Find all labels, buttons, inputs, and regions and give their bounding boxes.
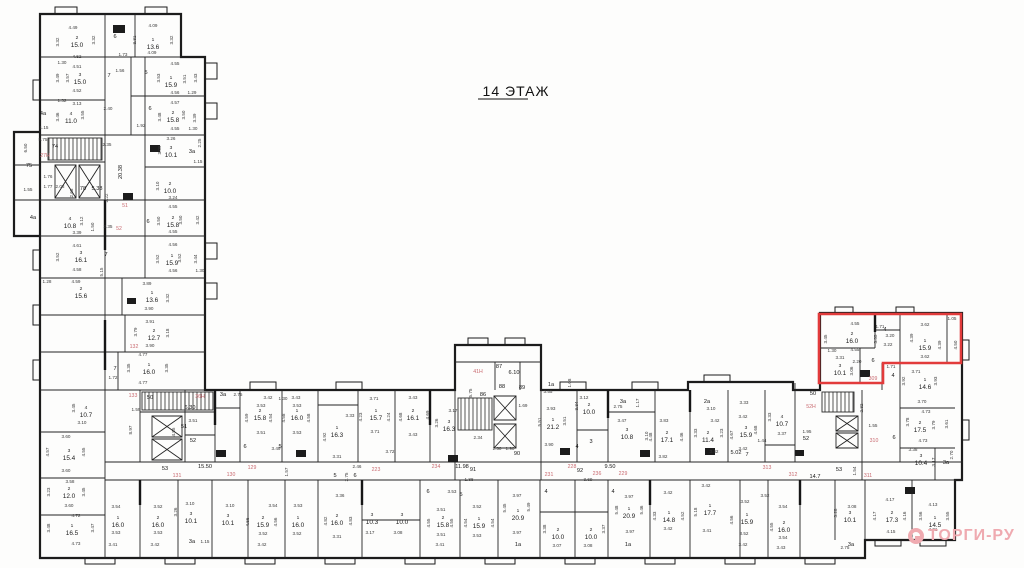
dimension-label: 3.34 [574, 401, 579, 410]
room-number-label: 2 [666, 430, 669, 436]
dimension-label: 4.49 [69, 25, 78, 30]
plan-annotation: 4 [575, 444, 578, 450]
dimension-label: 4.17 [886, 497, 895, 502]
dimension-label: 4.68 [398, 412, 403, 421]
dimension-label: 4.54 [490, 518, 495, 527]
thick-wall-accents [105, 200, 875, 505]
room-number-label: 1 [517, 508, 520, 514]
plan-annotation: 3 [589, 439, 592, 445]
room-area-label: 10.7 [80, 412, 93, 419]
dimension-label: 3.32 [55, 37, 60, 46]
dimension-label: 1.28 [43, 279, 52, 284]
dimension-label: 3.08 [848, 504, 857, 509]
dimension-label: 5.15 [99, 267, 104, 276]
dimension-label: 3.52 [155, 254, 160, 263]
room-number-label: 2 [783, 520, 786, 526]
apartment-number-label: 129 [248, 465, 257, 471]
dimension-label: 3.17 [449, 408, 458, 413]
dimension-label: 1.29 [188, 90, 197, 95]
dimension-label: 3.51 [189, 418, 198, 423]
dimension-label: 1.88 [465, 477, 474, 482]
dimension-label: 3.06 [849, 366, 854, 375]
plan-annotation: 15.50 [198, 464, 212, 470]
room-area-label: 15.9 [473, 523, 486, 530]
dimension-label: 3.10 [78, 420, 87, 425]
plan-annotation: 6 [426, 489, 429, 495]
dimension-label: 3.31 [333, 534, 342, 539]
room-area-label: 15.8 [167, 117, 180, 124]
dimension-label: 4.56 [273, 517, 278, 526]
room-area-label: 17.1 [661, 437, 674, 444]
dimension-label: 3.07 [553, 543, 562, 548]
room-number-label: 1 [148, 362, 151, 368]
dimension-label: 3.42 [151, 542, 160, 547]
room-number-label: 4 [69, 216, 72, 222]
page-title: 14 ЭТАЖ [483, 83, 550, 99]
dimension-label: 1.32 [58, 98, 67, 103]
dimension-label: 4.58 [281, 413, 286, 422]
apartment-number-label: 132 [130, 344, 139, 350]
room-area-label: 20.9 [512, 515, 525, 522]
dimension-label: 4.15 [887, 529, 896, 534]
dimension-label: 3.51 [437, 507, 446, 512]
dimension-label: 3.43 [409, 395, 418, 400]
dimension-label: 3.53 [156, 73, 161, 82]
room-number-label: 2 [153, 328, 156, 334]
dimension-label: 3.97 [626, 529, 635, 534]
dimension-label: 3.22 [884, 342, 893, 347]
plan-annotation: 52 [803, 436, 809, 442]
plan-annotation: 5.02 [731, 450, 742, 456]
dimension-label: 4.39 [909, 333, 914, 342]
dimension-label: 4.52 [73, 54, 82, 59]
dimension-label: 3.97 [513, 530, 522, 535]
dimension-label: 1.76 [44, 174, 53, 179]
plan-annotation: 6 [871, 358, 874, 364]
dimension-label: 2.08 [56, 184, 65, 189]
dimension-label: 3.91 [146, 319, 155, 324]
room-area-label: 10.1 [222, 520, 235, 527]
room-area-label: 10.3 [366, 519, 379, 526]
dimension-label: 4.56 [169, 268, 178, 273]
dimension-label: 1.55 [24, 187, 33, 192]
dimension-label: 3.48 [46, 523, 51, 532]
dimension-label: 4.58 [306, 413, 311, 422]
dimension-label: 3.50 [181, 110, 186, 119]
dimension-label: 3.54 [779, 504, 788, 509]
dimension-label: 3.32 [165, 293, 170, 302]
dimension-label: 3.61 [944, 419, 949, 428]
apartment-number-label: 312 [789, 472, 798, 478]
dimension-label: 3.33 [693, 428, 698, 437]
plan-annotation: 1а [625, 542, 632, 548]
room-number-label: 2 [412, 408, 415, 414]
apartment-number-label: 27Н [40, 153, 50, 159]
dimension-label: 3.93 [933, 376, 938, 385]
dimension-label: 4.51 [73, 64, 82, 69]
dimension-label: 4.55 [851, 321, 860, 326]
dimension-label: 3.08 [584, 543, 593, 548]
room-number-label: 2 [169, 181, 172, 187]
dimension-label: 4.59 [72, 279, 81, 284]
room-number-label: 4 [781, 414, 784, 420]
dimension-label: 4.92 [322, 432, 327, 441]
dimension-label: 4.55 [171, 427, 176, 436]
dimension-label: 3.10 [155, 181, 160, 190]
dimension-label: 3.92 [901, 376, 906, 385]
room-number-label: 1 [478, 516, 481, 522]
dimension-label: 3.69 [584, 477, 593, 482]
dimension-label: 4.39 [937, 340, 942, 349]
dimension-label: 3.51 [562, 416, 567, 425]
room-number-label: 1 [746, 512, 749, 518]
dimension-label: 3.39 [73, 230, 82, 235]
apartment-number-label: 36Н [195, 394, 205, 400]
dimension-label: 3.24 [169, 195, 178, 200]
plan-labels: 215.0113.6315.0115.9411.0215.8310.1210.0… [23, 23, 958, 550]
dimension-label: 3.18 [165, 328, 170, 337]
plan-annotation: 4 [544, 489, 547, 495]
plan-annotation: 75 [26, 163, 32, 169]
dimension-label: 1.56 [116, 68, 125, 73]
room-area-label: 10.8 [621, 434, 634, 441]
room-number-label: 1 [668, 510, 671, 516]
room-number-label: 3 [80, 250, 83, 256]
dimension-label: 2.70 [949, 450, 954, 459]
apartment-number-label: 131 [173, 473, 182, 479]
apartment-number-label: 313 [763, 465, 772, 471]
dimension-label: 3.97 [625, 494, 634, 499]
dimension-label: 4.55 [769, 522, 774, 531]
dimension-label: 5.46 [639, 505, 644, 514]
room-area-label: 10.0 [552, 534, 565, 541]
dimension-label: 2.68 [69, 188, 74, 197]
room-number-label: 3 [227, 513, 230, 519]
dimension-label: 3.79 [931, 420, 936, 429]
room-number-label: 2 [259, 408, 262, 414]
plan-annotation: 89 [519, 385, 525, 391]
room-area-label: 16.0 [152, 522, 165, 529]
dimension-label: 4.54 [463, 518, 468, 527]
dimension-label: 3.13 [73, 101, 82, 106]
room-area-label: 15.6 [75, 293, 88, 300]
plan-annotation: 7 [107, 73, 110, 79]
room-number-label: 1 [628, 506, 631, 512]
room-number-label: 1 [552, 417, 555, 423]
dimension-label: 3.58 [66, 479, 75, 484]
plan-annotation: 20.38 [118, 165, 124, 179]
room-number-label: 3 [745, 425, 748, 431]
dimension-label: 4.13 [929, 502, 938, 507]
plan-annotation: 6 [146, 219, 149, 225]
dimension-label: 3.62 [921, 354, 930, 359]
room-number-label: 2 [172, 215, 175, 221]
plan-annotation: 53 [162, 466, 168, 472]
dimension-label: 4.55 [81, 447, 86, 456]
dimension-label: 4.72 [72, 513, 81, 518]
plan-annotation: 6 [243, 444, 246, 450]
dimension-label: 3.44 [193, 254, 198, 263]
dimension-label: 3.60 [62, 434, 71, 439]
plan-annotation: 5.38 [92, 186, 103, 192]
plan-annotation: 2а [704, 399, 711, 405]
dimension-label: 3.43 [777, 545, 786, 550]
dimension-label: 4.09 [149, 23, 158, 28]
plan-annotation: 50 [147, 395, 153, 401]
dimension-label: 3.90 [545, 442, 554, 447]
room-number-label: 1 [117, 515, 120, 521]
dimension-label: 2.34 [474, 435, 483, 440]
dimension-label: 4.52 [73, 88, 82, 93]
plan-annotation: 3а [189, 149, 196, 155]
dimension-label: 3.38 [909, 447, 918, 452]
dimension-label: 3.45 [81, 487, 86, 496]
dimension-label: 3.42 [664, 490, 673, 495]
dimension-label: 3.54 [269, 503, 278, 508]
dimension-label: 1.50 [493, 446, 502, 451]
room-area-label: 14.6 [919, 384, 932, 391]
dimension-label: 4.69 [425, 410, 430, 419]
dimension-label: 3.71 [370, 396, 379, 401]
dimension-label: 3.78 [905, 417, 910, 426]
dimension-label: 3.90 [146, 343, 155, 348]
dimension-label: 4.61 [73, 243, 82, 248]
dimension-label: 4.09 [148, 50, 157, 55]
dimension-label: 3.42 [664, 526, 673, 531]
dimension-label: 4.55 [171, 61, 180, 66]
room-area-label: 15.8 [254, 415, 267, 422]
dimension-label: 4.68 [753, 425, 758, 434]
dimension-label: 1.59 [132, 407, 141, 412]
dimension-label: 3.35 [126, 363, 131, 372]
dimension-label: 4.50 [953, 340, 958, 349]
dimension-label: 3.32 [91, 35, 96, 44]
dimension-label: 3.43 [292, 395, 301, 400]
plan-annotation: 6 [892, 435, 895, 441]
plan-annotation: 11.98 [455, 464, 469, 470]
room-number-label: 2 [76, 35, 79, 41]
dimension-label: 4.55 [169, 229, 178, 234]
room-number-label: 1 [709, 503, 712, 509]
dimension-label: 3.09 [157, 145, 162, 154]
room-area-label: 16.0 [331, 520, 344, 527]
dimension-label: 3.53 [294, 503, 303, 508]
dimension-label: 1.73 [119, 52, 128, 57]
dimension-label: 1.30 [189, 126, 198, 131]
dimension-label: 4.48 [648, 432, 653, 441]
dimension-label: 3.51 [257, 430, 266, 435]
room-area-label: 10.1 [185, 518, 198, 525]
dimension-label: 3.26 [167, 136, 176, 141]
room-number-label: 3 [170, 145, 173, 151]
dimension-label: 3.55 [80, 110, 85, 119]
dimension-label: 5.51 [537, 417, 542, 426]
dimension-label: 3.12 [580, 395, 589, 400]
dimension-label: 5.45 [502, 503, 507, 512]
dimension-label: 3.28 [833, 508, 838, 517]
dimension-label: 3.37 [778, 431, 787, 436]
dimension-label: 4.54 [268, 413, 273, 422]
dimension-label: 3.50 [156, 216, 161, 225]
apartment-number-label: 51 [122, 203, 128, 209]
dimension-label: 3.70 [918, 399, 927, 404]
dimension-label: 3.52 [473, 504, 482, 509]
room-number-label: 3 [190, 511, 193, 517]
plan-annotation: 6 [353, 473, 356, 479]
dimension-label: 3.10 [186, 501, 195, 506]
dimension-label: 3.50 [178, 215, 183, 224]
plan-annotation: 50 [810, 391, 816, 397]
dimension-label: 3.26 [434, 418, 439, 427]
room-number-label: 2 [336, 513, 339, 519]
dimension-label: 4.77 [139, 380, 148, 385]
dimension-label: 2.20 [853, 359, 862, 364]
dimension-label: 3.52 [177, 253, 182, 262]
plan-annotation: 4 [883, 327, 886, 333]
apartment-number-label: 223 [372, 467, 381, 473]
dimension-label: 3.55 [873, 334, 878, 343]
room-area-label: 16.3 [443, 426, 456, 433]
dimension-label: 3.10 [707, 406, 716, 411]
room-area-label: 15.9 [165, 82, 178, 89]
dimension-label: 3.52 [154, 504, 163, 509]
dimension-label: 4.55 [449, 518, 454, 527]
room-area-label: 16.0 [778, 527, 791, 534]
dimension-label: 2.25 [197, 138, 202, 147]
room-area-label: 11.0 [65, 118, 77, 125]
plan-annotation: 6.30 [185, 405, 196, 411]
dimension-label: 3.93 [547, 406, 556, 411]
dimension-label: 2.75 [344, 472, 349, 481]
dimension-label: 3.12 [79, 216, 84, 225]
room-number-label: 2 [919, 420, 922, 426]
room-number-label: 3 [401, 512, 404, 518]
room-area-label: 16.5 [66, 530, 79, 537]
watermark-text: ТОРГИ-РУ [928, 527, 1015, 545]
dimension-label: 3.53 [154, 530, 163, 535]
dimension-label: 3.79 [133, 327, 138, 336]
room-area-label: 20.9 [623, 513, 636, 520]
dimension-label: 4.55 [426, 518, 431, 527]
plan-annotation: 86 [480, 392, 486, 398]
room-area-label: 16.3 [331, 432, 344, 439]
room-number-label: 1 [171, 253, 174, 259]
plan-annotation: 3а [620, 399, 627, 405]
room-number-label: 3 [849, 510, 852, 516]
room-area-label: 11.4 [702, 437, 714, 444]
room-number-label: 3 [371, 512, 374, 518]
dimension-label: 3.55 [945, 511, 950, 520]
room-number-label: 3 [448, 419, 451, 425]
apartment-number-label: 234 [432, 464, 441, 470]
dimension-label: 3.33 [767, 412, 772, 421]
room-number-label: 2 [172, 110, 175, 116]
dimension-label: 3.62 [921, 322, 930, 327]
room-area-label: 16.0 [112, 522, 125, 529]
plan-annotation: 4 [891, 373, 894, 379]
plan-annotation: 4а [40, 111, 47, 117]
room-number-label: 4 [70, 111, 73, 117]
room-area-label: 16.0 [143, 369, 156, 376]
dimension-label: 1.05 [948, 316, 957, 321]
plan-annotation: 90 [514, 451, 520, 457]
apartment-number-label: 229 [619, 471, 628, 477]
plan-annotation: 1а [548, 382, 555, 388]
dimension-label: 1.08 [567, 378, 572, 387]
dimension-label: 3.20 [886, 333, 895, 338]
dimension-label: 2.75 [234, 392, 243, 397]
plan-annotation: 74 [52, 144, 58, 150]
dimension-label: 3.53 [257, 403, 266, 408]
dimension-label: 1.55 [869, 423, 878, 428]
dimension-label: 8.97 [128, 425, 133, 434]
room-area-label: 17.7 [704, 510, 717, 517]
dimension-label: 1.30 [196, 268, 205, 273]
dimension-label: 1.57 [284, 467, 289, 476]
dimension-label: 3.52 [293, 531, 302, 536]
watermark: ТОРГИ-РУ [908, 527, 1015, 545]
room-area-label: 10.7 [776, 421, 789, 428]
dimension-label: 4.56 [245, 517, 250, 526]
room-area-label: 17.5 [914, 427, 927, 434]
room-area-label: 15.9 [919, 345, 932, 352]
dimension-label: 3.49 [55, 73, 60, 82]
plan-annotation: 9.50 [605, 464, 616, 470]
room-area-label: 15.9 [741, 519, 754, 526]
dimension-label: 3.43 [409, 432, 418, 437]
dimension-label: 3.10 [226, 503, 235, 508]
dimension-label: 4.83 [348, 516, 353, 525]
dimension-label: 3.42 [258, 542, 267, 547]
room-area-label: 10.8 [64, 223, 77, 230]
dimension-label: 3.42 [739, 542, 748, 547]
room-area-label: 10.0 [583, 409, 596, 416]
dimension-label: 3.53 [112, 530, 121, 535]
dimension-label: 3.53 [293, 430, 302, 435]
dimension-label: 3.31 [132, 35, 137, 44]
room-number-label: 1 [924, 377, 927, 383]
room-area-label: 10.1 [844, 517, 857, 524]
plan-annotation: 5 [278, 444, 281, 450]
dimension-label: 4.55 [169, 204, 178, 209]
plan-annotation: 3а [848, 542, 855, 548]
dimension-label: 3.89 [143, 281, 152, 286]
dimension-label: 3.52 [741, 499, 750, 504]
room-area-label: 10.0 [396, 519, 409, 526]
room-area-label: 14.8 [663, 517, 676, 524]
dimension-label: 1.54 [852, 466, 857, 475]
plan-annotation: 5 [144, 70, 147, 76]
room-number-label: 2 [851, 331, 854, 337]
dimension-label: 3.52 [740, 531, 749, 536]
room-number-label: 2 [442, 515, 445, 521]
dimension-label: 2.35 [103, 142, 112, 147]
apartment-number-label: 41Н [473, 369, 483, 375]
dimension-label: 1.15 [194, 159, 203, 164]
room-area-label: 15.0 [74, 79, 87, 86]
dimension-label: 3.26 [173, 507, 178, 516]
dimension-label: 1.92 [137, 123, 146, 128]
dimension-label: 4.33 [652, 511, 657, 520]
dimension-label: 3.37 [601, 524, 606, 533]
room-number-label: 3 [68, 448, 71, 454]
dimension-label: 3.42 [710, 449, 719, 454]
dimension-label: 3.54 [779, 535, 788, 540]
dimension-label: 4.56 [169, 242, 178, 247]
dimension-label: 2.35 [104, 224, 113, 229]
dimension-label: 4.67 [729, 430, 734, 439]
dimension-label: 2.40 [104, 106, 113, 111]
